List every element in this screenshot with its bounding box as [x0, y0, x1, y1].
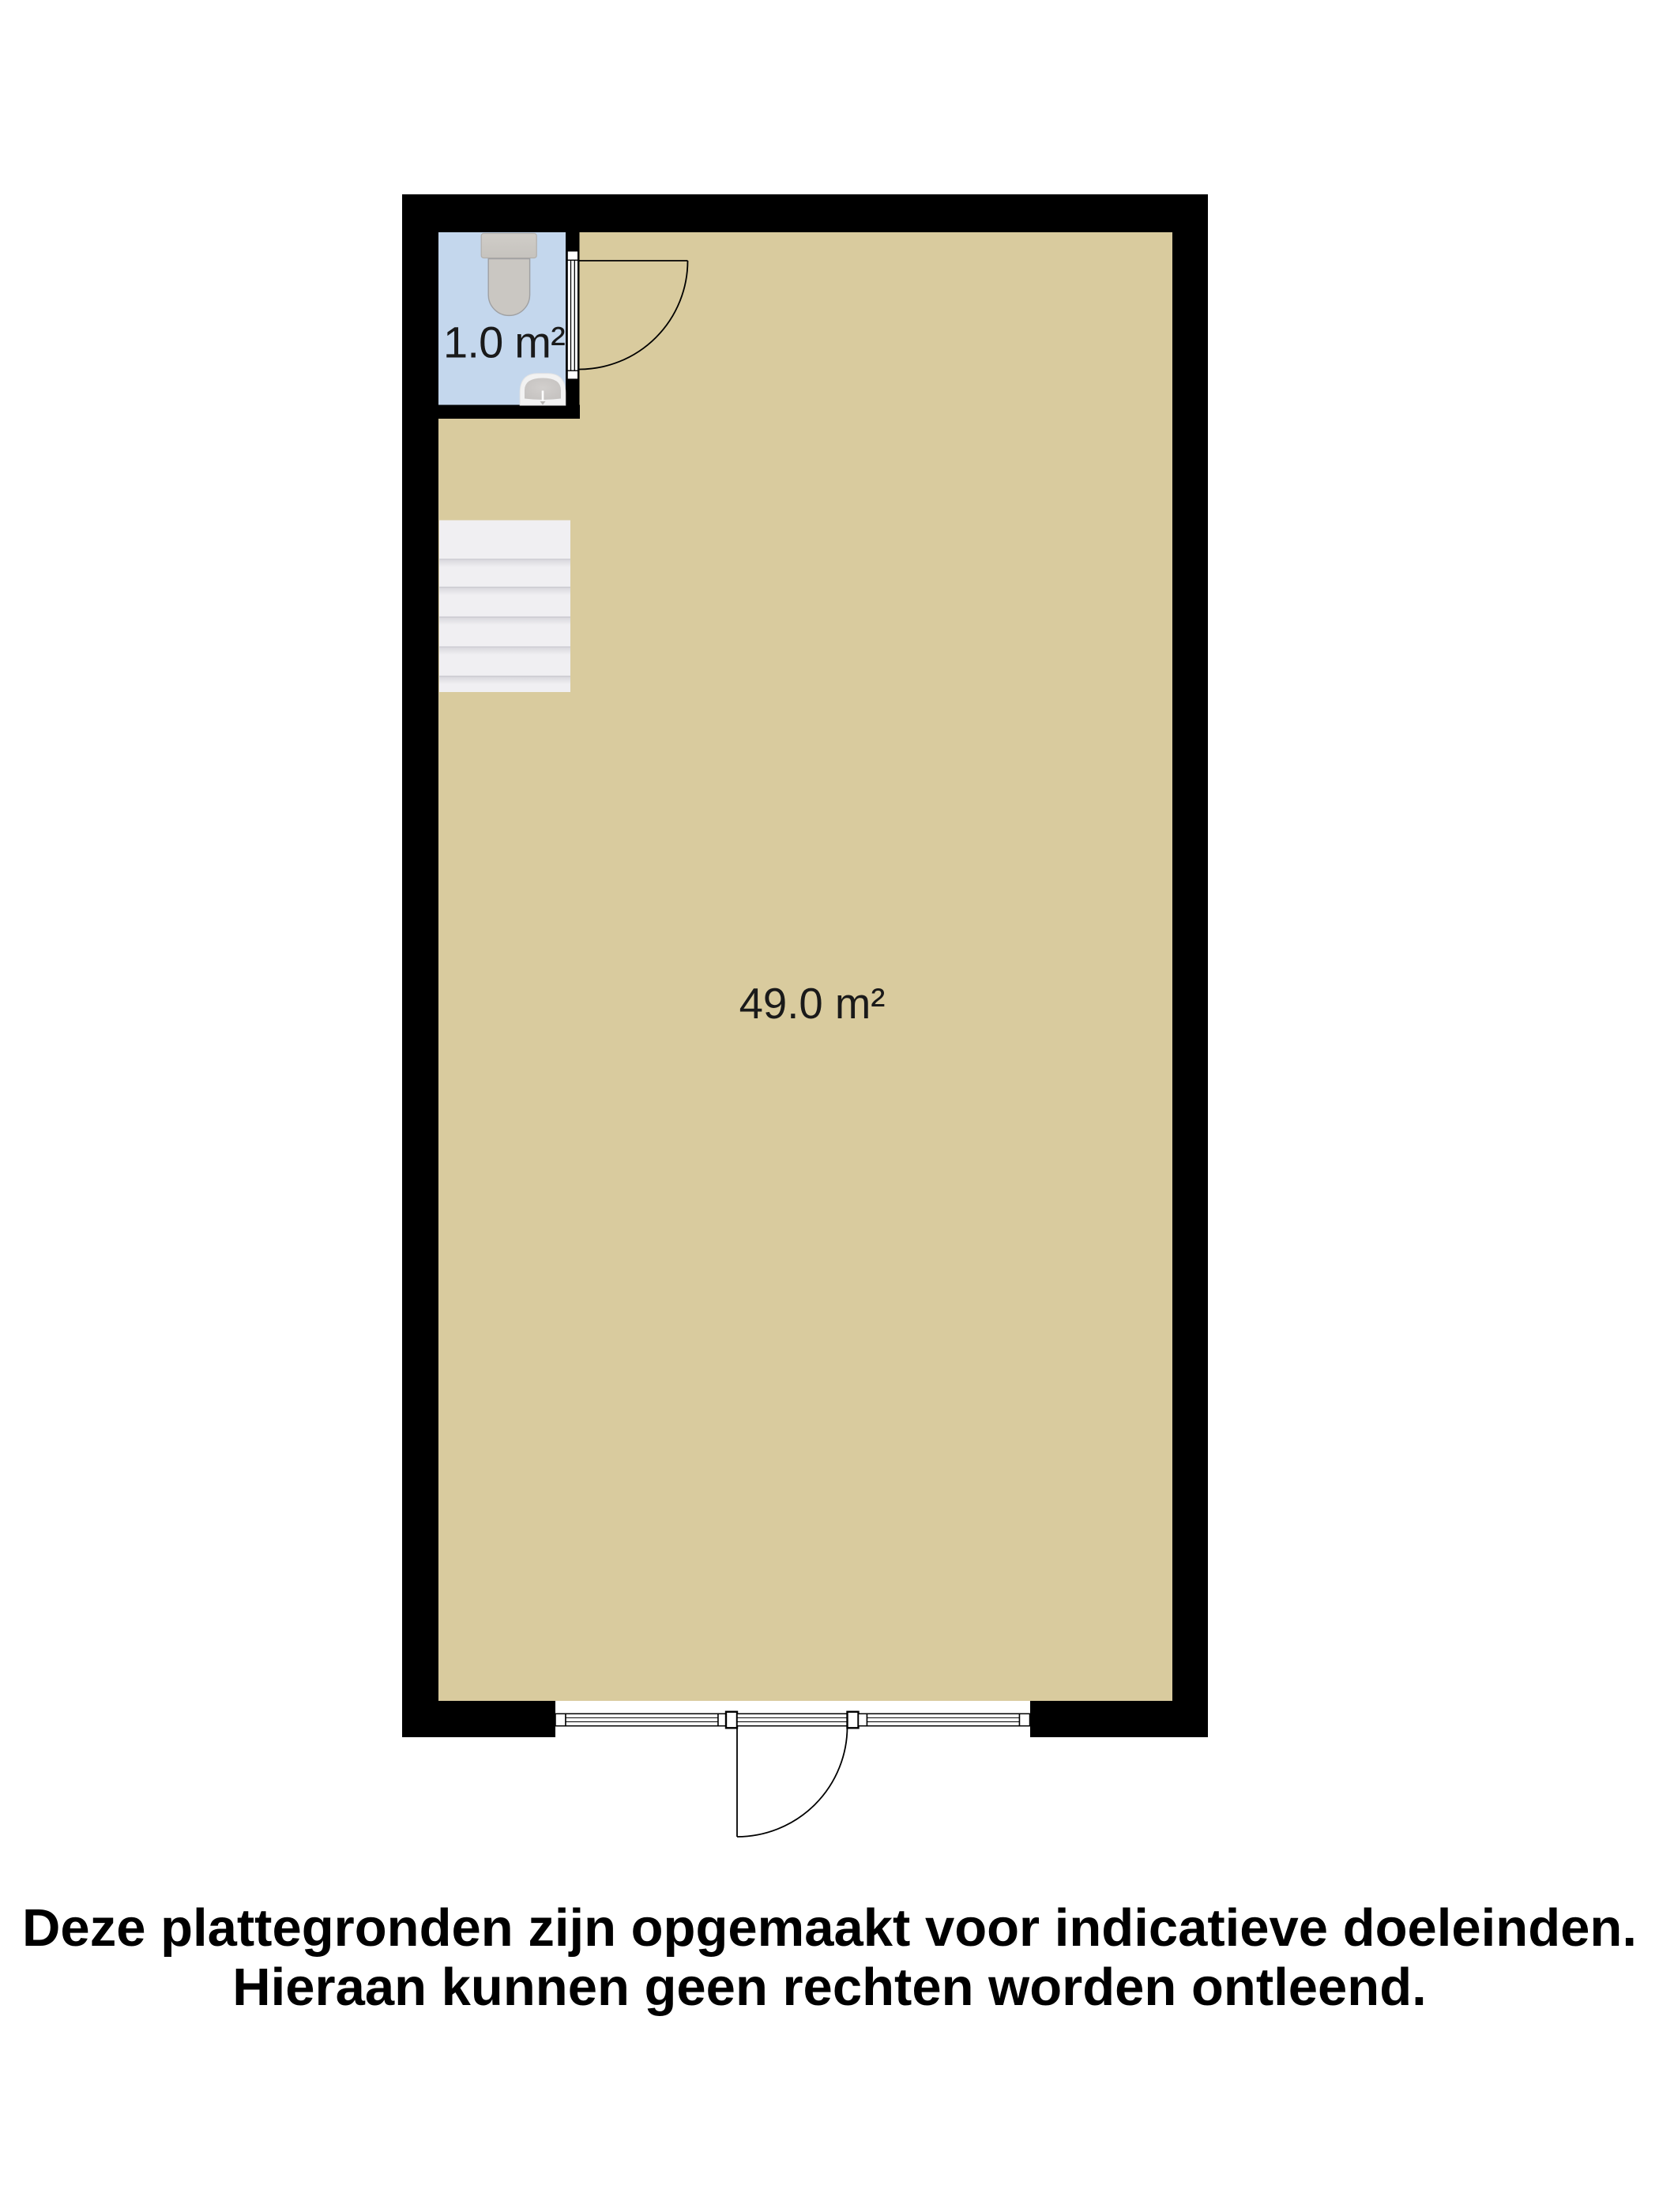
- svg-text:1.0 m²: 1.0 m²: [443, 318, 565, 367]
- svg-text:49.0 m²: 49.0 m²: [739, 980, 886, 1028]
- svg-text:Deze plattegronden zijn opgema: Deze plattegronden zijn opgemaakt voor i…: [22, 1898, 1637, 1958]
- svg-text:Hieraan kunnen geen rechten wo: Hieraan kunnen geen rechten worden ontle…: [232, 1958, 1427, 2017]
